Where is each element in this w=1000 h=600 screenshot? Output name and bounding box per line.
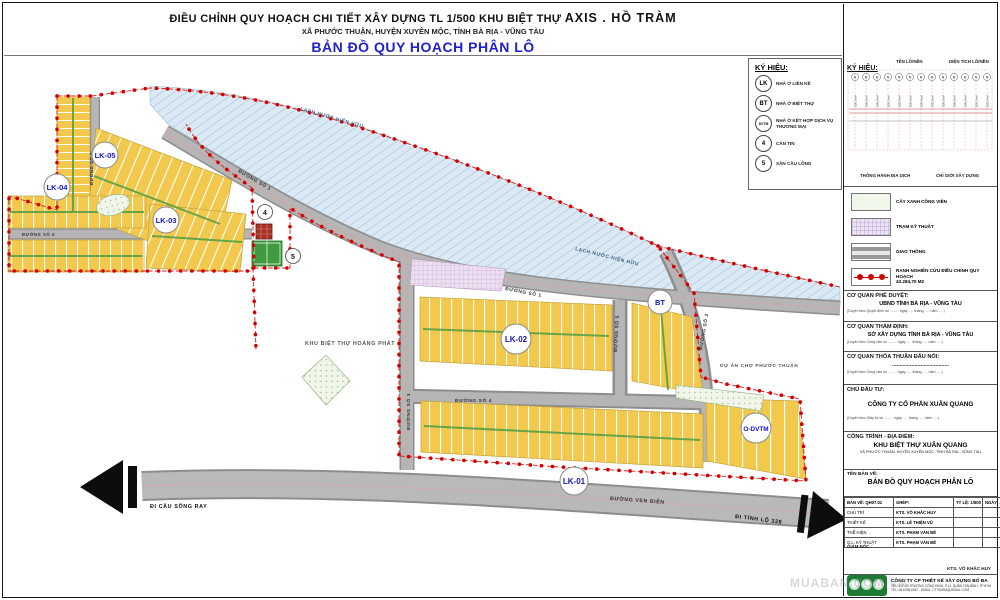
- project-name-text: KHU BIỆT THỰ XUÂN QUANG: [847, 442, 994, 449]
- drawing-title-text: BẢN ĐỒ QUY HOẠCH PHÂN LÔ: [847, 479, 994, 486]
- svg-text:ĐI CẦU SÔNG RAY: ĐI CẦU SÔNG RAY: [150, 502, 207, 510]
- zone-bt: BT: [648, 290, 672, 314]
- drawing-scale: TỶ LỆ: 1/500: [954, 498, 983, 508]
- director-signature: KTS. VÕ KHẮC HUY: [947, 566, 991, 571]
- court-symbol: 5: [755, 155, 772, 172]
- zone-lk04: LK-04: [44, 174, 70, 200]
- approval-authority-section: CƠ QUAN PHÊ DUYỆT: UBND TỈNH BÀ RỊA - VŨ…: [844, 291, 997, 322]
- swatch-legend-section: CÂY XANH CÔNG VIÊN TRẠM KỸ THUẬT GIAO TH…: [844, 187, 997, 291]
- arrow-to-song-ray: [80, 460, 137, 514]
- swatch-boundary: RANH NGHIÊN CỨU ĐIỀU CHỈNH QUY HOẠCH 43.…: [851, 264, 994, 289]
- park-swatch: [851, 193, 891, 211]
- lot-name-label: TÊN LÔ/NỀN: [896, 59, 923, 64]
- bt-symbol: BT: [755, 95, 772, 112]
- legend-item-bt: BT NHÀ Ở BIỆT THỰ: [755, 95, 837, 112]
- svg-text:LK-02: LK-02: [505, 335, 528, 344]
- lot-diagram: N 100,0 m²: [847, 69, 994, 164]
- svg-text:LK-03: LK-03: [156, 216, 177, 225]
- symbols-section: KÝ HIỆU: TÊN LÔ/NỀN DIỆN TÍCH LÔ/NỀN N 1…: [844, 55, 997, 187]
- boundary-swatch: [851, 268, 891, 286]
- map-legend-title: KÝ HIỆU:: [755, 63, 841, 72]
- project-name: AXIS . HỒ TRÀM: [565, 11, 677, 25]
- legend-item-canteen: 4 CĂN TIN: [755, 135, 837, 152]
- park-2: [302, 355, 350, 405]
- svg-text:BT: BT: [655, 298, 665, 307]
- right-panel: KÝ HIỆU: TÊN LÔ/NỀN DIỆN TÍCH LÔ/NỀN N 1…: [843, 4, 997, 596]
- building-line-label: CHỈ GIỚI XÂY DỰNG: [936, 173, 979, 178]
- plan-sheet: ĐIỀU CHỈNH QUY HOẠCH CHI TIẾT XÂY DỰNG T…: [0, 0, 1000, 600]
- zone-lk03: LK-03: [153, 207, 179, 233]
- dvtm-symbol: DVTM: [755, 115, 772, 132]
- lot-area-label: DIỆN TÍCH LÔ/NỀN: [949, 59, 989, 64]
- project-section: CÔNG TRÌNH - ĐỊA ĐIỂM: KHU BIỆT THỰ XUÂN…: [844, 432, 997, 470]
- legend-item-court: 5 SÂN CẦU LÔNG: [755, 155, 837, 172]
- investor-section: CHỦ ĐẦU TƯ: CÔNG TY CỔ PHẦN XUÂN QUANG (…: [844, 385, 997, 432]
- easement-label: THÔNG HÀNH ĐỊA DỊCH: [860, 173, 910, 178]
- label-hoang-phat: KHU BIỆT THỰ HOÀNG PHÁT: [305, 339, 395, 347]
- lk-symbol: LK: [755, 75, 772, 92]
- svg-text:O-DVTM: O-DVTM: [743, 426, 768, 433]
- zone-lk01: LK-01: [560, 467, 588, 495]
- drawing-info-table: BẢN VẼ: QH07.01 GHÉP: TỶ LỆ: 1/500 NGÀY:…: [844, 497, 997, 542]
- sheet-number: BẢN VẼ: QH07.01: [845, 498, 894, 508]
- appraisal-authority-section: CƠ QUAN THẨM ĐỊNH: SỞ XÂY DỰNG TỈNH BÀ R…: [844, 322, 997, 352]
- title-band: ĐIỀU CHỈNH QUY HOẠCH CHI TIẾT XÂY DỰNG T…: [4, 4, 842, 56]
- zone-lk02: LK-02: [501, 324, 531, 354]
- tech-swatch: [851, 218, 891, 236]
- director-section: GIÁM ĐỐC KTS. VÕ KHẮC HUY: [844, 542, 997, 575]
- arrow-to-tl328: [796, 490, 843, 543]
- canteen-building: [256, 224, 272, 239]
- role-row: THỂ HIỆN KTS. PHẠM VĂN ĐẾ: [845, 528, 1000, 538]
- canteen-symbol: 4: [755, 135, 772, 152]
- badminton-court: [252, 241, 282, 266]
- marker-court: 5: [286, 249, 301, 264]
- svg-text:LK-04: LK-04: [47, 183, 69, 192]
- marker-canteen: 4: [258, 205, 273, 220]
- connection-agreement-section: CƠ QUAN THỎA THUẬN ĐẤU NỐI: ............…: [844, 352, 997, 385]
- swatch-road: GIAO THÔNG: [851, 239, 994, 264]
- watermark: MUABAN.COM.VN: [790, 576, 908, 590]
- zone-lk05: LK-05: [92, 142, 118, 168]
- svg-text:ĐƯỜNG SỐ 6: ĐƯỜNG SỐ 6: [22, 232, 55, 237]
- legend-item-lk: LK NHÀ Ở LIÊN KẾ: [755, 75, 837, 92]
- role-row: THIẾT KẾ KTS. LÊ THIỆN VŨ: [845, 518, 1000, 528]
- planning-map: ĐƯỜNG SỐ 1 ĐƯỜNG SỐ 1 LẠCH NƯỚC HIỆN HỮU…: [0, 55, 843, 598]
- svg-text:LK-01: LK-01: [563, 477, 586, 486]
- drawing-date: NGÀY: ... - 02 - 2019: [983, 498, 1000, 508]
- label-cho-phuoc-thuan: DỰ ÁN CHỢ PHƯỚC THUẬN: [720, 361, 798, 369]
- block-lk01: [421, 401, 703, 468]
- svg-text:5: 5: [291, 254, 295, 261]
- drawing-name-section: TÊN BẢN VẼ: BẢN ĐỒ QUY HOẠCH PHÂN LÔ: [844, 470, 997, 497]
- role-row: CHỦ TRÌ KTS. VÕ KHẮC HUY: [845, 508, 1000, 518]
- swatch-tech: TRẠM KỸ THUẬT: [851, 214, 994, 239]
- map-title: BẢN ĐỒ QUY HOẠCH PHÂN LÔ: [4, 39, 842, 55]
- svg-text:LK-05: LK-05: [95, 151, 116, 160]
- svg-text:4: 4: [263, 210, 267, 217]
- legend-item-dvtm: DVTM NHÀ Ở KẾT HỢP DỊCH VỤ THƯƠNG MẠI: [755, 115, 837, 132]
- swatch-park: CÂY XANH CÔNG VIÊN: [851, 189, 994, 214]
- road-swatch: [851, 243, 891, 261]
- zone-dvtm: O-DVTM: [741, 413, 771, 443]
- main-title-text: ĐIỀU CHỈNH QUY HOẠCH CHI TIẾT XÂY DỰNG T…: [169, 13, 561, 25]
- map-legend-box: KÝ HIỆU: LK NHÀ Ở LIÊN KẾ BT NHÀ Ở BIỆT …: [748, 58, 842, 190]
- subtitle-location: XÃ PHƯỚC THUẬN, HUYỆN XUYÊN MỘC, TỈNH BÀ…: [4, 27, 842, 36]
- main-title: ĐIỀU CHỈNH QUY HOẠCH CHI TIẾT XÂY DỰNG T…: [4, 11, 842, 25]
